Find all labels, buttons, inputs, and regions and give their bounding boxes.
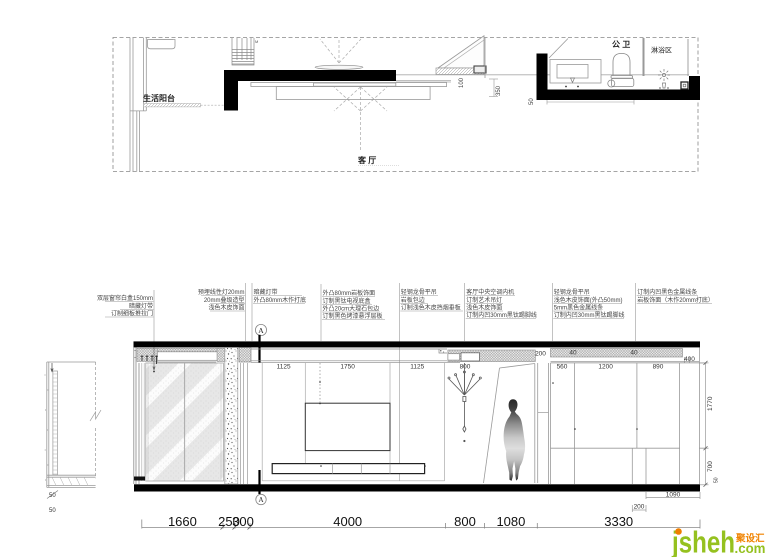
svg-text:预埋线性灯20mm: 预埋线性灯20mm [198,288,245,296]
svg-text:订制黑色烤漆悬浮层板: 订制黑色烤漆悬浮层板 [323,312,383,320]
svg-text:1080: 1080 [496,514,525,529]
svg-text:700: 700 [707,461,714,472]
svg-text:公 卫: 公 卫 [612,40,630,49]
svg-text:双层窗帘白盒150mm: 双层窗帘白盒150mm [97,294,153,302]
svg-text:生活阳台: 生活阳台 [143,93,175,103]
svg-text:800: 800 [454,514,476,529]
svg-text:浅色木皮饰面(外凸50mm): 浅色木皮饰面(外凸50mm) [554,296,623,304]
svg-text:客 厅: 客 厅 [357,155,376,165]
svg-text:400: 400 [684,356,695,363]
svg-text:订制内凹30mm黑钛踢脚线: 订制内凹30mm黑钛踢脚线 [554,311,625,319]
svg-text:A: A [258,326,264,335]
svg-text:浅色木皮饰面: 浅色木皮饰面 [466,304,502,312]
svg-text:订制浅色木皮挡烟垂板: 订制浅色木皮挡烟垂板 [401,304,461,312]
svg-text:订制内凹30mm黑钛踢脚线: 订制内凹30mm黑钛踢脚线 [466,311,537,319]
svg-text:890: 890 [653,364,664,371]
svg-text:50: 50 [714,477,720,483]
svg-text:1125: 1125 [410,364,424,371]
svg-text:暗藏灯带: 暗藏灯带 [254,288,278,296]
svg-text:订制艺术吊灯: 订制艺术吊灯 [466,296,502,304]
svg-text:50: 50 [529,98,535,105]
svg-text:50: 50 [49,508,56,514]
svg-text:200: 200 [535,351,546,358]
svg-text:客厅中央空调内机: 客厅中央空调内机 [466,288,514,296]
svg-text:订制黑钛电视底盒: 订制黑钛电视底盒 [323,297,371,305]
svg-text:M: M [255,39,258,44]
svg-text:订制细板推拉门: 订制细板推拉门 [111,310,153,318]
svg-text:轻钢龙骨平吊: 轻钢龙骨平吊 [554,288,590,296]
svg-text:1750: 1750 [340,364,355,371]
svg-text:淋浴区: 淋浴区 [651,46,672,55]
svg-text:外凸20cm大理石包边: 外凸20cm大理石包边 [323,305,380,313]
svg-text:4000: 4000 [333,514,362,529]
svg-text:1125: 1125 [277,364,291,371]
svg-text:1200: 1200 [598,364,613,371]
svg-text:5mm黑色金属线条: 5mm黑色金属线条 [554,304,603,312]
svg-text:暗藏灯带: 暗藏灯带 [129,302,153,310]
svg-text:岩板包边: 岩板包边 [401,296,425,304]
svg-text:40: 40 [630,350,638,357]
svg-text:.com: .com [735,540,766,556]
svg-text:订制内凹黑色金属线条: 订制内凹黑色金属线条 [637,288,697,296]
svg-text:1660: 1660 [168,514,197,529]
svg-text:800: 800 [460,364,471,371]
svg-text:浅色木皮饰面: 浅色木皮饰面 [208,304,244,312]
svg-text:外凸80mm木作打底: 外凸80mm木作打底 [254,296,307,304]
svg-text:外凸80mm岩板饰面: 外凸80mm岩板饰面 [323,289,376,297]
svg-text:560: 560 [557,364,568,371]
svg-text:3330: 3330 [604,514,633,529]
svg-text:1770: 1770 [707,396,714,411]
svg-text:40: 40 [569,350,577,357]
svg-text:20mm叠级造型: 20mm叠级造型 [204,296,245,304]
svg-text:轻钢龙骨平吊: 轻钢龙骨平吊 [401,288,437,296]
svg-text:1090: 1090 [666,492,681,499]
svg-text:A: A [258,496,263,504]
svg-text:100: 100 [459,77,465,88]
svg-text:岩板饰面（木作20mm打底）: 岩板饰面（木作20mm打底） [637,296,714,304]
svg-text:300: 300 [232,514,254,529]
svg-text:200: 200 [634,504,645,511]
svg-text:350: 350 [496,85,502,96]
